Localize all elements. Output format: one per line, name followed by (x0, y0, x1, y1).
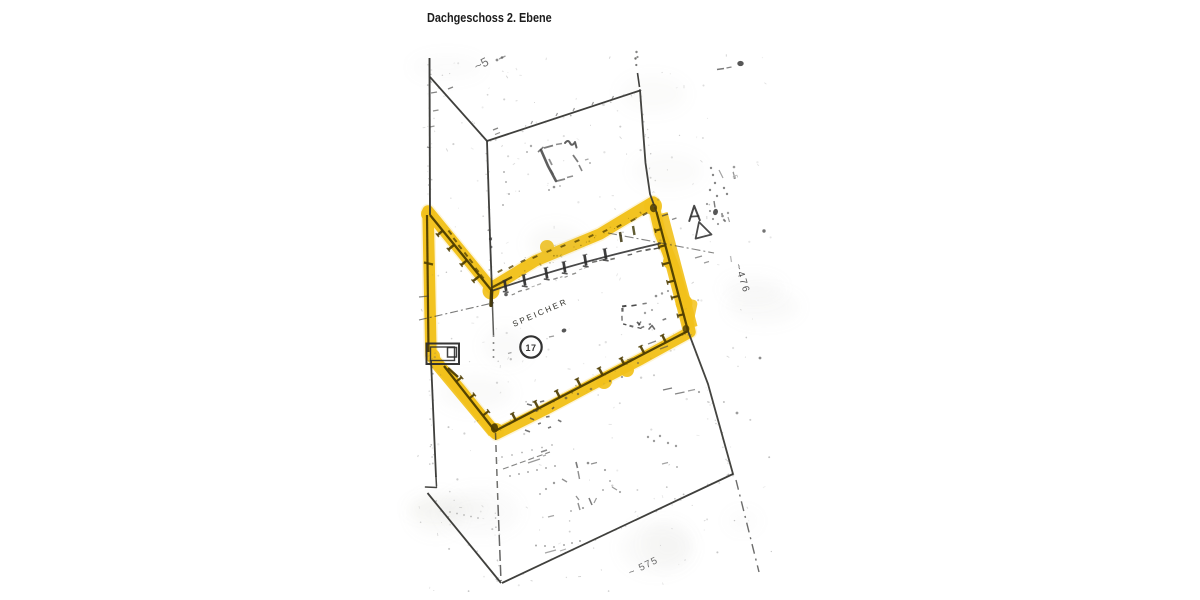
svg-text:17: 17 (525, 343, 536, 353)
svg-text:SPEICHER: SPEICHER (511, 297, 569, 329)
